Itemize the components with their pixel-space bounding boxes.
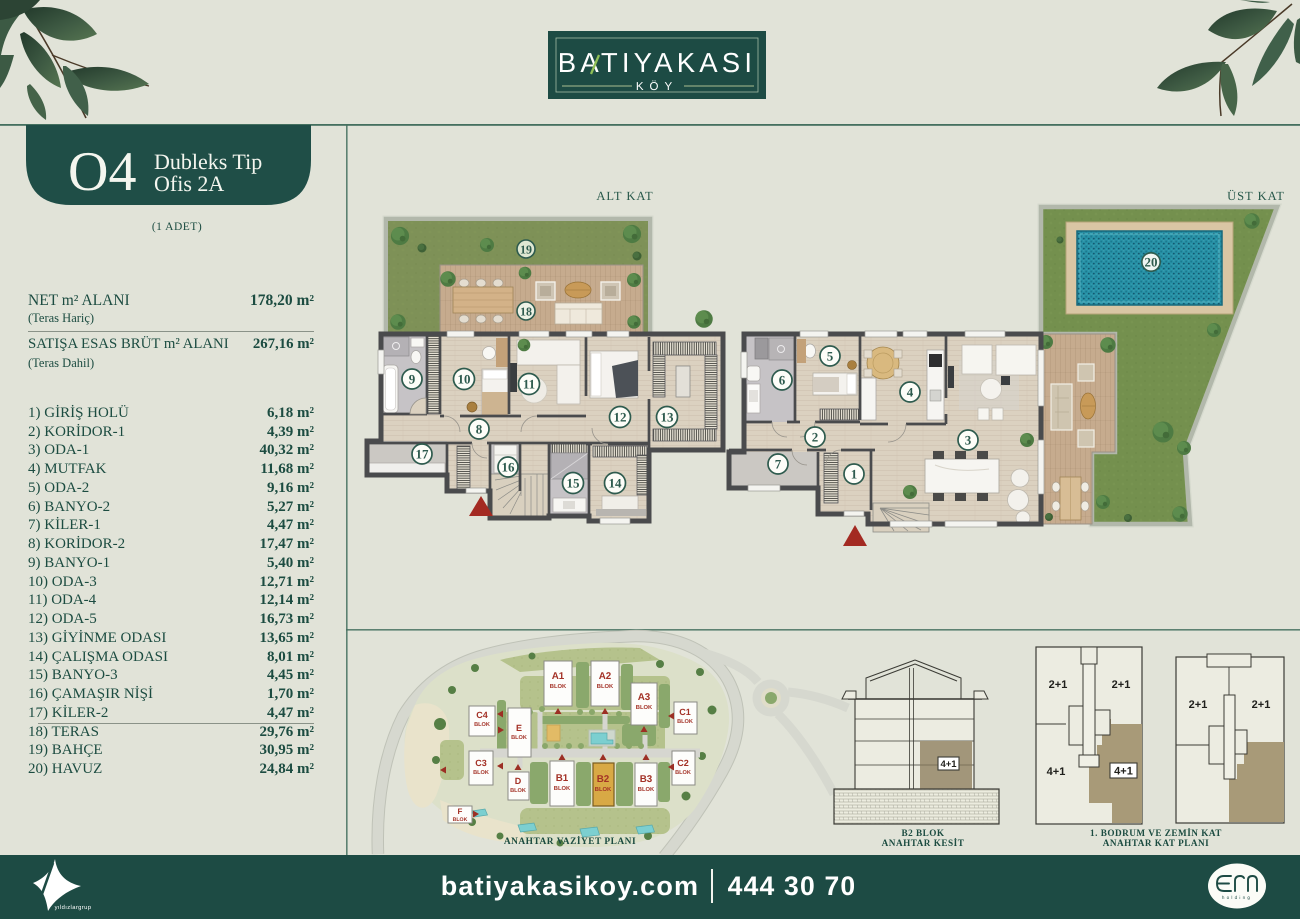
svg-text:4+1: 4+1 [1114,766,1133,778]
svg-text:18: 18 [520,305,532,319]
svg-text:20: 20 [1145,255,1158,270]
svg-text:15: 15 [567,476,581,491]
svg-text:BLOK: BLOK [550,683,567,690]
svg-text:C1: C1 [679,707,691,717]
svg-text:yıldızlargrup: yıldızlargrup [55,904,92,911]
svg-text:O4: O4 [68,141,136,203]
svg-text:B2: B2 [597,774,610,785]
svg-text:9: 9 [409,372,416,387]
svg-text:C4: C4 [476,710,488,720]
svg-text:BLOK: BLOK [554,785,571,792]
svg-text:KÖY: KÖY [636,80,678,93]
svg-text:BLOK: BLOK [595,786,612,793]
svg-text:BLOK: BLOK [638,786,655,793]
svg-text:7: 7 [775,457,782,472]
svg-text:2+1: 2+1 [1049,679,1068,691]
svg-text:1: 1 [851,467,858,482]
svg-text:BLOK: BLOK [511,735,527,741]
svg-text:8: 8 [476,422,483,437]
svg-text:D: D [515,776,522,786]
svg-text:4+1: 4+1 [1047,766,1066,778]
svg-text:16: 16 [502,460,516,475]
svg-text:BLOK: BLOK [510,788,526,794]
svg-text:B3: B3 [640,774,653,785]
svg-text:BLOK: BLOK [675,770,691,776]
svg-text:F: F [458,807,463,816]
svg-text:6: 6 [779,373,786,388]
svg-text:12: 12 [614,410,627,425]
svg-text:A3: A3 [638,692,651,703]
svg-text:BLOK: BLOK [636,704,653,711]
svg-text:3: 3 [965,433,972,448]
svg-text:C3: C3 [475,758,487,768]
svg-text:C2: C2 [677,758,689,768]
svg-text:BLOK: BLOK [677,719,693,725]
svg-text:ÜST KAT: ÜST KAT [1227,189,1285,203]
svg-text:17: 17 [416,447,430,462]
svg-text:ALT KAT: ALT KAT [596,189,653,203]
svg-text:4: 4 [907,385,914,400]
svg-text:14: 14 [609,476,623,491]
svg-text:2+1: 2+1 [1189,699,1208,711]
svg-text:BATIYAKASI: BATIYAKASI [558,47,756,78]
svg-text:A1: A1 [552,671,565,682]
svg-text:2+1: 2+1 [1252,699,1271,711]
svg-text:4+1: 4+1 [940,759,957,770]
svg-text:2+1: 2+1 [1112,679,1131,691]
svg-text:5: 5 [827,349,834,364]
svg-text:2: 2 [812,430,819,445]
svg-text:B1: B1 [556,773,569,784]
svg-text:A2: A2 [599,671,612,682]
svg-text:BLOK: BLOK [474,722,490,728]
svg-text:BLOK: BLOK [597,683,614,690]
svg-text:19: 19 [520,243,532,257]
svg-text:BLOK: BLOK [473,770,489,776]
svg-text:holding: holding [1222,895,1252,900]
svg-text:10: 10 [458,372,471,387]
svg-text:E: E [516,723,522,733]
svg-text:Ofis 2A: Ofis 2A [154,171,224,196]
svg-text:11: 11 [523,377,535,392]
svg-text:13: 13 [661,410,675,425]
svg-text:BLOK: BLOK [453,817,468,823]
